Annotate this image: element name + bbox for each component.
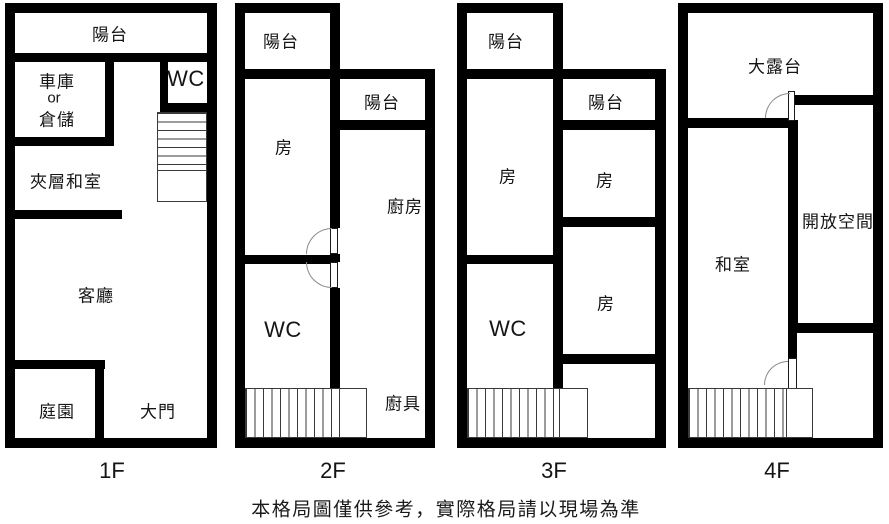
room-label-main-entrance: 大門 [140,398,176,423]
floor-plan-4f: 大露台 和室 開放空間 [678,3,883,448]
wall-4f-bottom [678,438,883,448]
wall-1f-top [5,3,217,13]
wall-4f-left [678,3,688,448]
wall-2f-bottom [235,438,435,448]
floor-plan-2f: 陽台 陽台 房 廚房 WC 廚具 [235,3,435,448]
wall-4f-right [873,3,883,448]
wall-2f-mid-horizontal [245,69,435,79]
room-label-balcony-1f: 陽台 [92,21,128,46]
wall-4f-terrace-bottom-left [688,118,795,128]
wall-3f-right [655,69,666,448]
floor-label-1f: 1F [99,458,125,484]
staircase-4f [688,388,813,438]
room-label-bedroom-right-lower-3f: 房 [597,290,615,315]
floor-plan-1f: 陽台 車庫 or 倉儲 WC 夾層和室 客廳 庭園 大門 [5,3,217,448]
room-label-mezzanine: 夾層和室 [30,168,102,193]
room-label-terrace: 大露台 [748,53,802,78]
wall-4f-central-upper [788,120,798,330]
stair-treads-4f [689,389,787,437]
wall-1f-garden-right [95,360,104,438]
wall-4f-central-lower [788,330,797,358]
staircase-1f [157,112,207,202]
room-label-garage-line2: or [47,90,60,107]
door-panel-4f-tatami [788,358,797,389]
wall-2f-central-upper [330,3,340,228]
floor-plan-3f: 陽台 陽台 房 房 房 WC [457,3,666,448]
wall-4f-terrace-bottom-right [793,95,873,105]
room-label-kitchen-counter: 廚具 [385,390,421,415]
wall-2f-central-lower [330,288,340,388]
room-label-bedroom-right-upper-3f: 房 [596,167,614,192]
wall-2f-left [235,3,245,448]
stair-treads-2f [246,389,340,437]
wall-3f-wc-divider [467,255,553,264]
room-label-balcony-front-2f: 陽台 [263,28,299,53]
floor-label-3f: 3F [541,458,567,484]
floor-plan-sheet: 陽台 車庫 or 倉儲 WC 夾層和室 客廳 庭園 大門 陽台 陽台 房 廚房 … [0,0,889,524]
wall-2f-central-nub [330,254,340,262]
wall-1f-garden-top [15,360,105,369]
room-label-wc-2f: WC [264,317,302,343]
wall-3f-bottom [457,438,666,448]
floor-label-2f: 2F [320,458,346,484]
room-label-balcony-side-2f: 陽台 [364,89,400,114]
wall-1f-wc-bottom [160,103,207,112]
door-arc-4f-terrace [765,93,790,118]
door-arc-4f-tatami [764,361,788,385]
room-label-tatami-room: 和室 [715,251,751,276]
door-arc-2f-bedroom [306,228,332,254]
room-label-bedroom-left-3f: 房 [499,163,517,188]
wall-1f-mezzanine-divider [15,210,122,219]
disclaimer-text: 本格局圖僅供參考，實際格局請以現場為準 [251,495,641,522]
wall-3f-mid-horizontal [467,69,666,79]
door-arc-2f-wc [306,262,332,288]
room-label-living-room: 客廳 [78,282,114,307]
wall-1f-left [5,3,15,448]
stair-treads-3f [468,389,560,437]
room-label-bedroom-2f: 房 [275,134,293,159]
stair-treads-1f [158,113,206,171]
room-label-balcony-side-3f: 陽台 [588,89,624,114]
staircase-2f [245,388,367,438]
room-label-wc-3f: WC [489,316,527,342]
room-label-garage-line3: 倉儲 [39,106,75,131]
room-label-balcony-front-3f: 陽台 [488,28,524,53]
wall-2f-side-balcony-bottom [340,120,425,130]
wall-1f-right [207,3,217,448]
wall-3f-right-room-divider-upper [563,217,655,227]
staircase-3f [467,388,588,438]
wall-1f-balcony-bottom [15,53,207,62]
room-label-open-space: 開放空間 [802,208,874,233]
wall-3f-right-room-divider-lower [563,354,655,364]
wall-4f-open-space-bottom [788,323,873,333]
room-label-wc-1f: WC [167,66,205,92]
room-label-garden: 庭園 [39,398,75,423]
floor-label-4f: 4F [764,458,790,484]
wall-2f-right [425,69,435,448]
wall-4f-top [678,3,883,13]
room-label-kitchen: 廚房 [387,193,423,218]
wall-3f-side-balcony-bottom [563,120,655,130]
wall-3f-top [457,3,563,13]
wall-3f-central [553,3,563,388]
wall-1f-garage-right [105,62,114,146]
wall-1f-garage-bottom [15,137,114,146]
wall-3f-left [457,3,467,448]
wall-2f-top [235,3,340,13]
wall-1f-bottom [5,438,217,448]
